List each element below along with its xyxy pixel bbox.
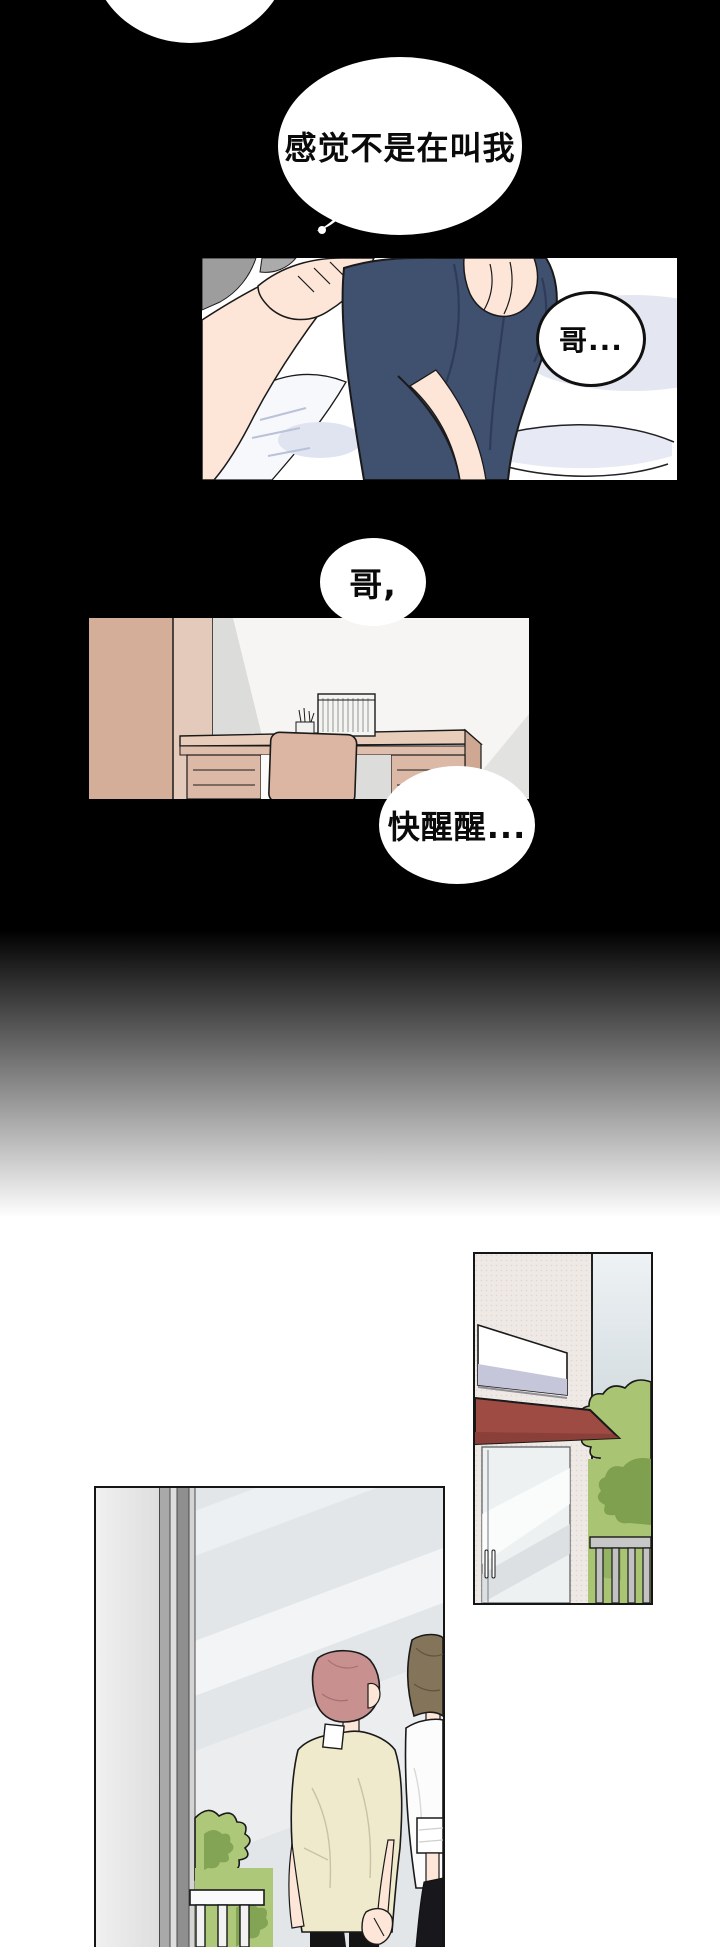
- street-scene-illustration: [96, 1488, 443, 1947]
- thought-bubble-dot: [318, 226, 326, 234]
- comic-page: 感觉不是在叫我: [0, 0, 720, 1947]
- panel-street-scene: [94, 1486, 445, 1947]
- thought-bubble-main: 感觉不是在叫我: [278, 57, 522, 235]
- radiator: [318, 694, 375, 736]
- window-frame: [96, 1488, 195, 1947]
- speech-bubble-ge-comma-text: 哥,: [349, 558, 397, 606]
- chair: [269, 732, 357, 799]
- speech-bubble-wake-up: 快醒醒...: [379, 766, 535, 884]
- back-collar-tag: [323, 1724, 344, 1749]
- speech-bubble-ge-comma: 哥,: [320, 538, 426, 626]
- speech-bubble-ge-ellipsis: 哥...: [536, 291, 646, 387]
- black-to-white-gradient: [0, 930, 720, 1218]
- panel-building-scene: [473, 1252, 653, 1605]
- glass-door: [482, 1447, 570, 1603]
- building-scene-illustration: [475, 1254, 651, 1603]
- pen-holder: [296, 708, 314, 736]
- thought-bubble-main-text: 感觉不是在叫我: [284, 123, 515, 169]
- speech-bubble-wake-up-text: 快醒醒...: [388, 802, 526, 848]
- speech-bubble-ge-ellipsis-text: 哥...: [559, 319, 623, 359]
